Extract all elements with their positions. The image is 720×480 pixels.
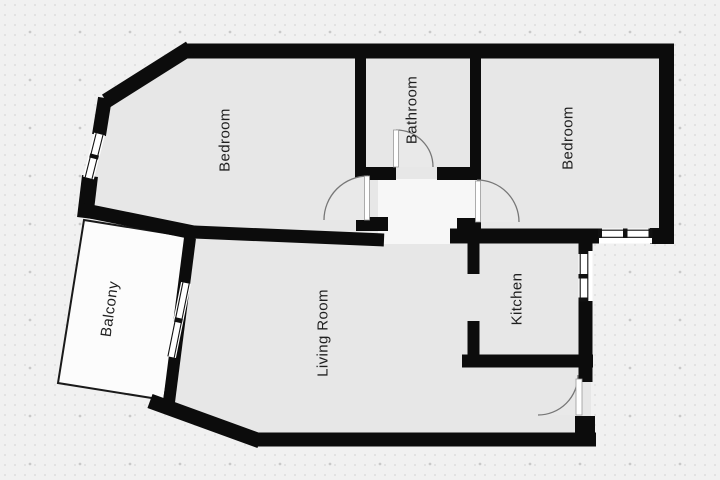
door-leaf: [365, 176, 370, 220]
door-leaf: [394, 130, 399, 167]
wall-bedroom-living: [194, 232, 384, 240]
label-kitchen: Kitchen: [509, 273, 526, 326]
wall-left-upper: [99, 98, 105, 135]
label-bedroom-left: Bedroom: [217, 108, 234, 172]
floor-plan-canvas: Bedroom Bathroom Bedroom Living Room Kit…: [0, 0, 720, 480]
door-leaf: [476, 181, 481, 222]
door-leaf: [576, 379, 582, 415]
label-bedroom-right: Bedroom: [560, 106, 577, 170]
floor-plan: Bedroom Bathroom Bedroom Living Room Kit…: [0, 0, 720, 480]
window-kitchen: [579, 250, 593, 302]
label-living-room: Living Room: [315, 289, 332, 377]
window-bedroom-right: [598, 229, 653, 244]
label-bathroom: Bathroom: [404, 76, 421, 144]
